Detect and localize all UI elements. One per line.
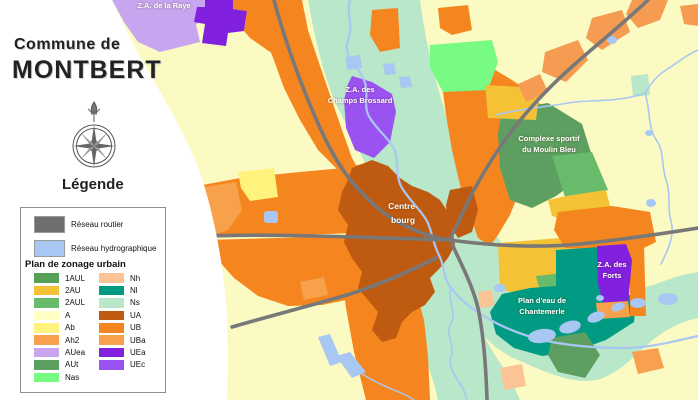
legend-swatch-A (34, 311, 59, 321)
legend-row-hydro: Réseau hydrographique (34, 240, 156, 257)
legend-title: Légende (62, 176, 124, 193)
legend-swatch-2AU (34, 286, 59, 296)
legend-swatch-2AUL (34, 298, 59, 308)
legend-zone-col1: 1AUL2AU2AULAAbAh2AUeaAUtNas (34, 272, 85, 384)
legend-swatch-roads (34, 216, 65, 233)
legend-zone-label-Ab: Ab (65, 323, 75, 332)
map-label-plan-eau-line2: Chantemerle (518, 306, 566, 317)
legend-swatch-AUea (34, 348, 59, 358)
legend-zone-label-UBa: UBa (130, 336, 146, 345)
map-label-complexe: Complexe sportif du Moulin Bleu (518, 133, 579, 155)
legend-zone-row: UBa (99, 334, 146, 346)
zone-nh-sq2 (500, 364, 526, 390)
map-label-forts: Z.A. des Forts (597, 259, 626, 281)
zone-nas (430, 40, 498, 92)
legend-zone-row: Nh (99, 272, 146, 284)
map-label-plan-eau: Plan d'eau de Chantemerle (518, 295, 566, 317)
legend-swatch-Nas (34, 373, 59, 383)
legend-zone-label-2AUL: 2AUL (65, 298, 85, 307)
commune-title: MONTBERT (12, 56, 162, 85)
map-label-complexe-line1: Complexe sportif (518, 133, 579, 144)
commune-subtitle: Commune de (14, 36, 120, 54)
legend-zone-row: AUt (34, 359, 85, 371)
zone-ns-small (631, 74, 650, 97)
legend-label-hydro: Réseau hydrographique (71, 244, 156, 253)
legend-zone-label-Ns: Ns (130, 298, 140, 307)
legend-swatch-1AUL (34, 273, 59, 283)
legend-zone-label-Nas: Nas (65, 373, 79, 382)
legend-swatch-AUt (34, 360, 59, 370)
map-label-za-champs-line1: Z.A. des (328, 84, 393, 95)
legend-zone-row: Ab (34, 322, 85, 334)
legend-zone-row: Ah2 (34, 334, 85, 346)
legend-zone-row: UEa (99, 346, 146, 358)
legend-zone-row: UB (99, 322, 146, 334)
legend-zone-row: UEc (99, 359, 146, 371)
map-label-za-champs-line2: Champs Brossard (328, 95, 393, 106)
legend-zone-row: Nl (99, 284, 146, 296)
legend-swatch-UB (99, 323, 124, 333)
legend-zone-label-2AU: 2AU (65, 286, 81, 295)
legend-swatch-Ah2 (34, 335, 59, 345)
legend-zone-label-UEc: UEc (130, 360, 145, 369)
legend-swatch-Nl (99, 286, 124, 296)
zoning-map-page: Z.A. de la Raye Z.A. des Champs Brossard… (0, 0, 698, 400)
legend-swatch-hydro (34, 240, 65, 257)
legend-zoning-title: Plan de zonage urbain (25, 259, 126, 270)
legend-swatch-UBa (99, 335, 124, 345)
legend-zone-label-AUea: AUea (65, 348, 85, 357)
map-label-forts-line2: Forts (597, 270, 626, 281)
zone-nh-sq1 (478, 290, 494, 308)
map-label-za-champs: Z.A. des Champs Brossard (328, 84, 393, 106)
map-label-centre-line1: Centre- (388, 199, 418, 213)
legend-swatch-Ns (99, 298, 124, 308)
legend-swatch-Nh (99, 273, 124, 283)
legend-zone-label-Nh: Nh (130, 274, 140, 283)
legend-zone-row: Ns (99, 297, 146, 309)
legend-zone-row: A (34, 309, 85, 321)
legend-zone-row: AUea (34, 346, 85, 358)
map-label-za-raye: Z.A. de la Raye (137, 0, 190, 11)
legend-zone-label-UEa: UEa (130, 348, 146, 357)
map-label-plan-eau-line1: Plan d'eau de (518, 295, 566, 306)
legend-zone-row: 2AU (34, 284, 85, 296)
legend-zone-row: Nas (34, 371, 85, 383)
map-label-centre-line2: bourg (388, 213, 418, 227)
map-label-complexe-line2: du Moulin Bleu (518, 144, 579, 155)
legend-swatch-Ab (34, 323, 59, 333)
legend-zone-label-A: A (65, 311, 70, 320)
legend-zone-label-1AUL: 1AUL (65, 274, 85, 283)
legend-label-roads: Réseau routier (71, 220, 123, 229)
compass-rose-icon (64, 100, 124, 178)
legend-row-roads: Réseau routier (34, 216, 123, 233)
legend-box: Réseau routier Réseau hydrographique Pla… (20, 207, 166, 393)
legend-zone-row: 1AUL (34, 272, 85, 284)
legend-zone-col2: NhNlNsUAUBUBaUEaUEc (99, 272, 146, 371)
legend-zone-label-Ah2: Ah2 (65, 336, 79, 345)
legend-zone-row: 2AUL (34, 297, 85, 309)
legend-zone-label-UB: UB (130, 323, 141, 332)
legend-swatch-UEc (99, 360, 124, 370)
legend-swatch-UA (99, 311, 124, 321)
legend-zone-label-Nl: Nl (130, 286, 138, 295)
legend-zone-label-AUt: AUt (65, 360, 78, 369)
legend-zone-label-UA: UA (130, 311, 141, 320)
map-label-forts-line1: Z.A. des (597, 259, 626, 270)
map-label-centre-bourg: Centre- bourg (388, 199, 418, 227)
legend-swatch-UEa (99, 348, 124, 358)
legend-zone-row: UA (99, 309, 146, 321)
